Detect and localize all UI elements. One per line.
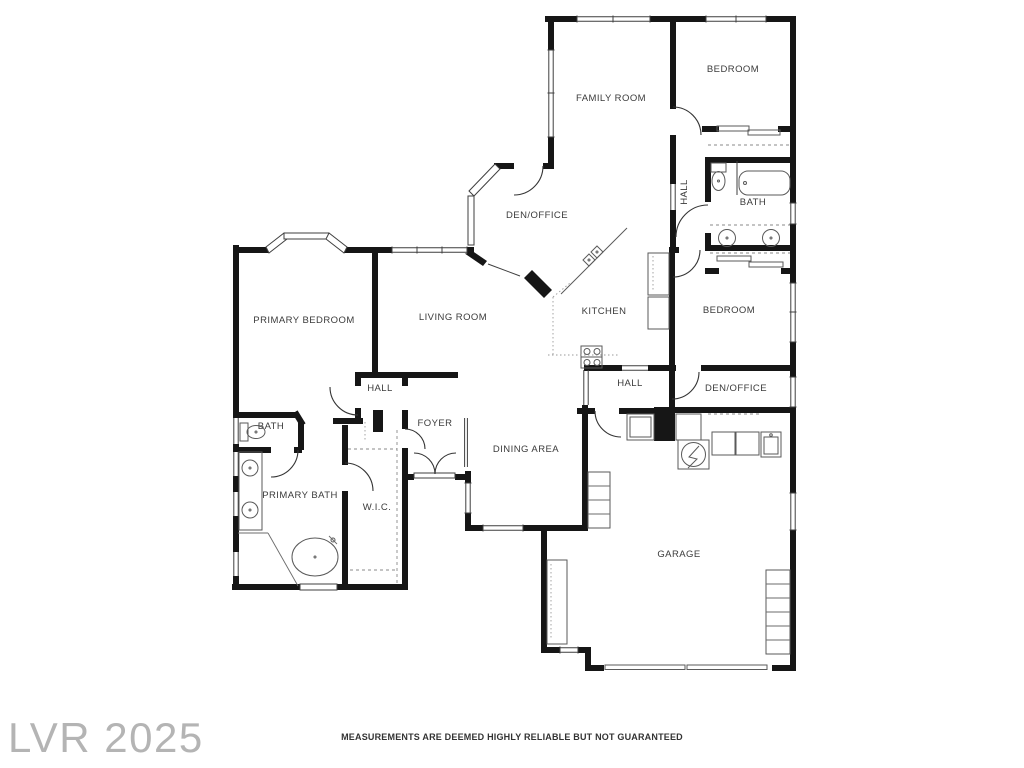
utility-sink	[761, 432, 781, 457]
kitchen-counter	[548, 283, 618, 355]
double-vanity	[710, 225, 790, 247]
floorplan-drawing: FAMILY ROOM BEDROOM HALL BATH DEN/OFFICE…	[0, 0, 1024, 768]
windows	[233, 16, 797, 673]
washer	[627, 414, 654, 440]
door-arc-garage-entry	[595, 411, 621, 437]
door-arc-den-office-2	[672, 372, 699, 399]
room-label-kitchen: KITCHEN	[582, 306, 627, 317]
door-arc-entry-right	[435, 453, 456, 474]
refrigerator	[648, 297, 669, 329]
foyer-railing	[465, 418, 468, 467]
wall-pillar	[373, 410, 383, 432]
garage-wall-pillar	[654, 407, 675, 441]
cased-opening	[488, 264, 520, 276]
workbench	[547, 560, 567, 644]
kitchen-island	[561, 228, 627, 294]
disclaimer-text: MEASUREMENTS ARE DEEMED HIGHLY RELIABLE …	[0, 732, 1024, 742]
room-label-den-office-2: DEN/OFFICE	[705, 383, 767, 394]
room-label-hall-3: HALL	[617, 378, 643, 389]
window	[790, 283, 797, 342]
window	[548, 50, 555, 137]
garage-shelving	[766, 570, 790, 654]
bay-window	[468, 196, 474, 245]
door-arc-den-office-1	[514, 166, 543, 195]
utility-counter	[712, 432, 759, 455]
bay-window	[284, 233, 329, 239]
diagonal-wall-stub-2	[524, 270, 552, 298]
room-label-family-room: FAMILY ROOM	[576, 93, 646, 104]
walls	[232, 16, 796, 671]
room-label-foyer: FOYER	[418, 418, 453, 429]
room-label-bath-1: BATH	[740, 197, 766, 208]
room-label-hall-2: HALL	[367, 383, 393, 394]
window	[465, 483, 472, 513]
room-label-hall-1: HALL	[679, 179, 690, 205]
room-label-den-office-1: DEN/OFFICE	[506, 210, 568, 221]
glass-panel	[300, 584, 337, 590]
soaking-tub	[238, 533, 338, 586]
window	[706, 16, 766, 23]
room-label-garage: GARAGE	[657, 549, 700, 560]
window	[233, 492, 240, 516]
garage-door	[604, 664, 772, 672]
stove	[581, 346, 602, 368]
window	[790, 493, 797, 530]
cased-opening	[584, 370, 588, 405]
floorplan-page: FAMILY ROOM BEDROOM HALL BATH DEN/OFFICE…	[0, 0, 1024, 768]
water-heater	[678, 440, 709, 469]
window	[233, 452, 240, 476]
room-label-primary-bedroom: PRIMARY BEDROOM	[253, 315, 354, 326]
pantry	[648, 253, 669, 295]
window	[233, 552, 240, 576]
room-label-dining-area: DINING AREA	[493, 444, 559, 455]
window	[392, 247, 467, 254]
room-label-living-room: LIVING ROOM	[419, 312, 487, 323]
room-labels: FAMILY ROOM BEDROOM HALL BATH DEN/OFFICE…	[253, 64, 767, 560]
bay-window	[469, 164, 500, 196]
room-label-bedroom-2: BEDROOM	[703, 305, 755, 316]
window	[233, 418, 240, 444]
door-arc-bedroom-2	[673, 250, 700, 277]
bathtub	[739, 171, 790, 195]
dryer	[676, 414, 701, 440]
door-arc-entry-left	[414, 453, 435, 474]
door-arc-primary-bedroom	[330, 387, 358, 415]
door-arc-toilet-room	[271, 450, 298, 477]
toilet	[711, 163, 726, 191]
window	[577, 16, 650, 23]
room-label-bedroom-1: BEDROOM	[707, 64, 759, 75]
door-arc-primary-suite	[405, 429, 425, 449]
window	[790, 377, 797, 407]
bay-window	[326, 233, 347, 253]
primary-vanity	[239, 452, 262, 530]
doors	[271, 107, 708, 491]
closet-bedroom-2	[710, 253, 790, 267]
window	[483, 525, 523, 532]
window	[790, 203, 797, 224]
cased-opening	[622, 366, 648, 370]
door-arc-bath-1	[676, 205, 708, 237]
room-label-bath-2: BATH	[258, 421, 284, 432]
door-arc-wic	[345, 463, 373, 491]
room-label-primary-bath: PRIMARY BATH	[262, 490, 338, 501]
cased-opening	[671, 184, 675, 210]
door-arc-bedroom-1	[673, 107, 701, 135]
garage-steps	[588, 472, 610, 528]
window	[560, 647, 578, 654]
room-label-wic: W.I.C.	[363, 502, 392, 513]
